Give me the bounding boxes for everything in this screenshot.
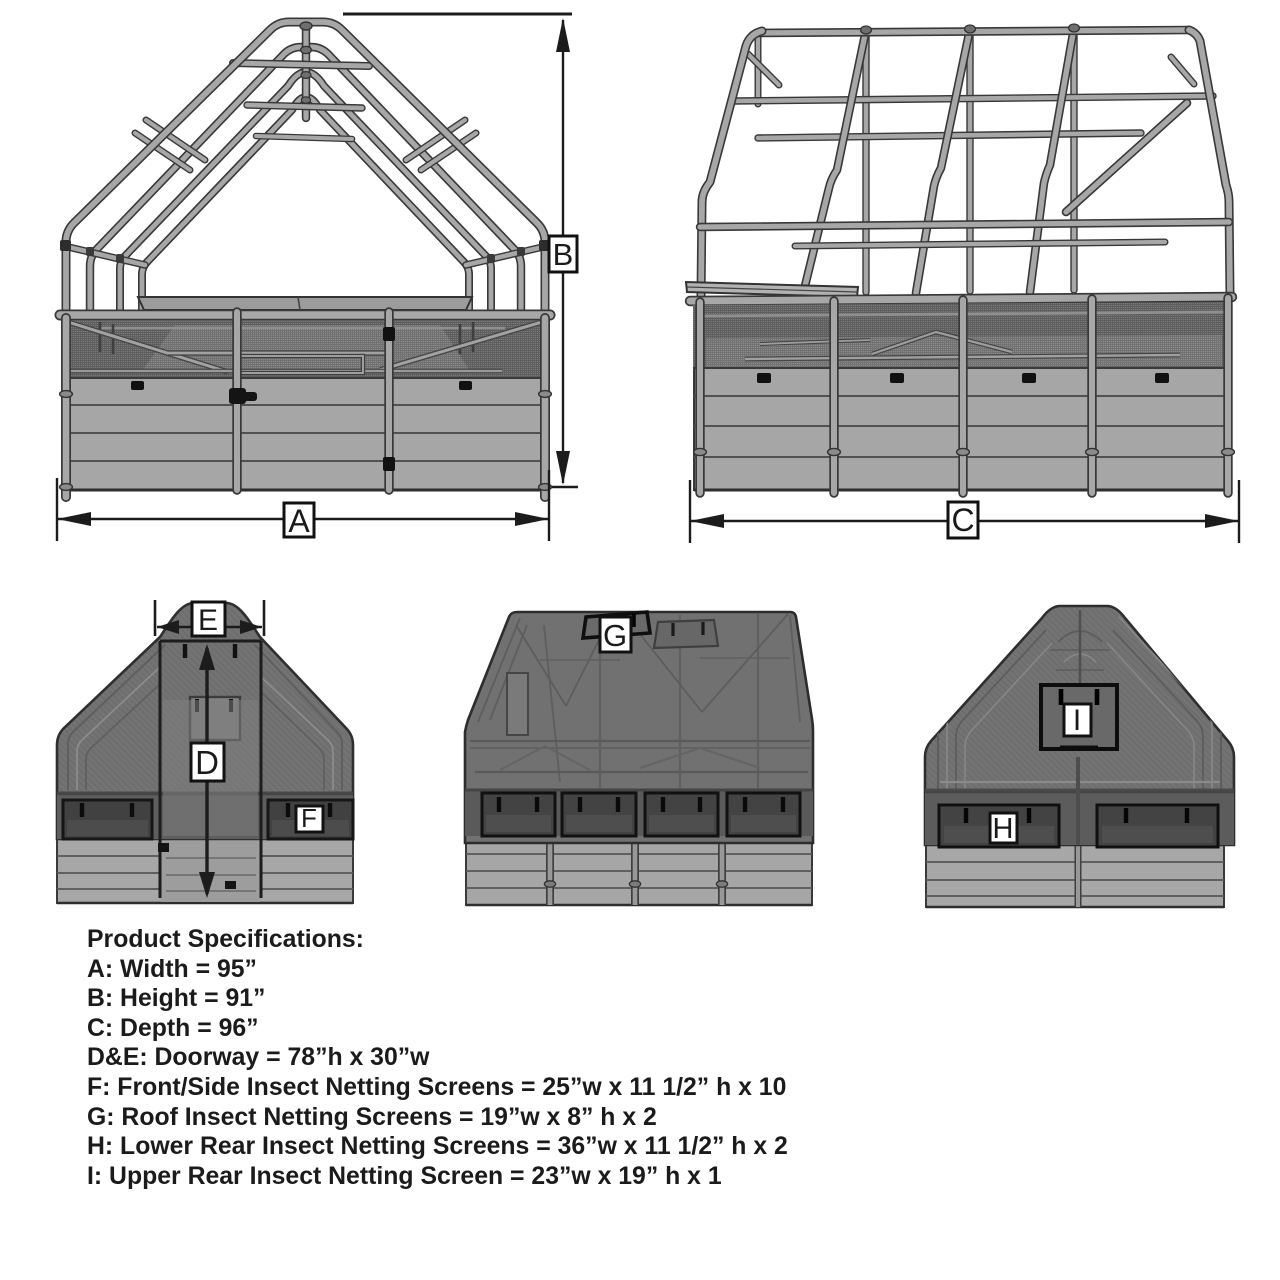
svg-text:H: H bbox=[993, 813, 1014, 845]
svg-text:A: A bbox=[288, 503, 310, 539]
svg-text:I: I bbox=[1073, 704, 1081, 737]
svg-text:E: E bbox=[198, 604, 218, 637]
svg-text:G: G bbox=[603, 618, 627, 653]
svg-text:C: C bbox=[951, 502, 974, 538]
svg-text:F: F bbox=[301, 803, 317, 833]
svg-text:D: D bbox=[195, 744, 219, 781]
svg-text:B: B bbox=[553, 237, 574, 272]
